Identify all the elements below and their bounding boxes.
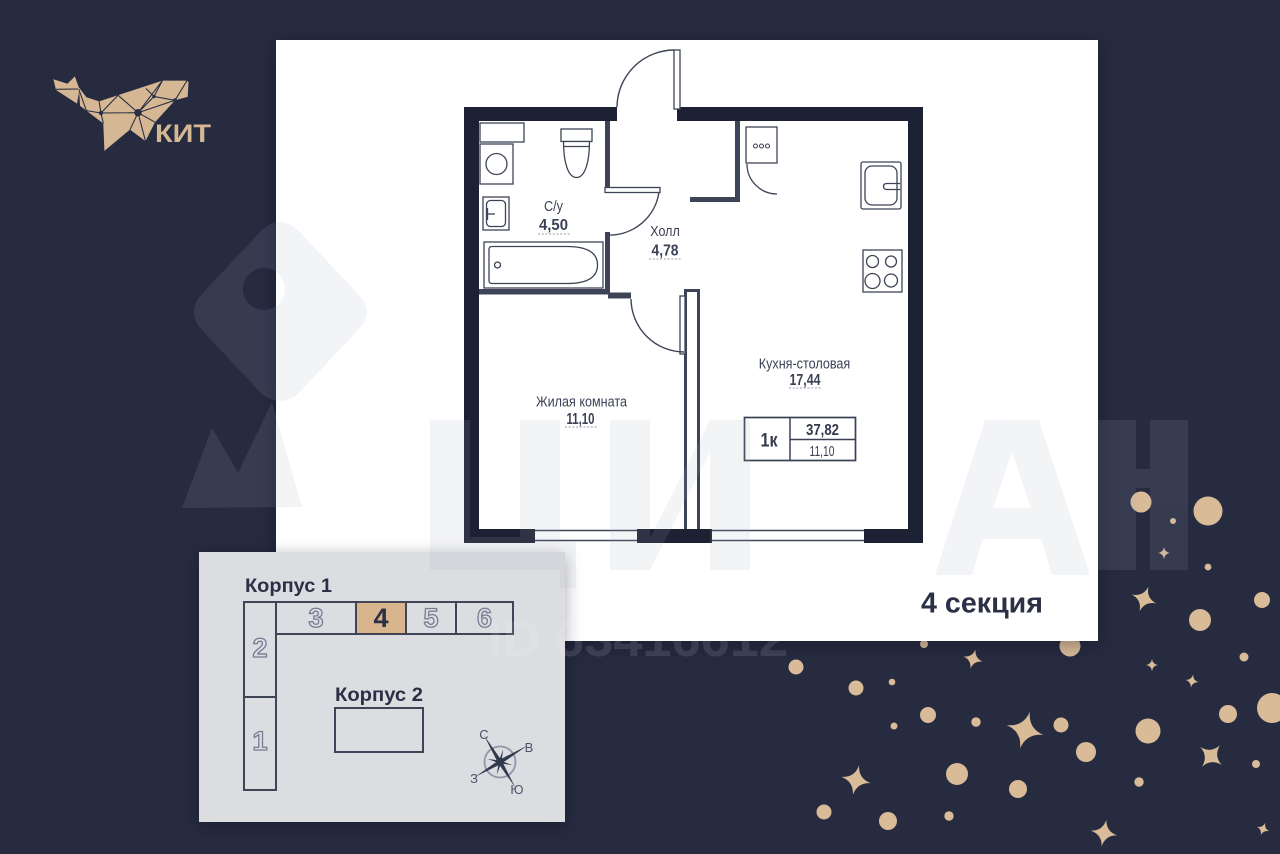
svg-text:4,78: 4,78 xyxy=(652,243,679,260)
svg-text:5: 5 xyxy=(423,603,438,633)
svg-text:4: 4 xyxy=(373,603,388,633)
svg-text:17,44: 17,44 xyxy=(790,372,821,389)
svg-text:Кухня-столовая: Кухня-столовая xyxy=(759,357,851,373)
svg-text:1к: 1к xyxy=(761,430,778,452)
svg-text:КИТ: КИТ xyxy=(155,120,211,148)
svg-text:Корпус 2: Корпус 2 xyxy=(335,685,423,706)
svg-text:6: 6 xyxy=(477,603,492,633)
svg-text:Холл: Холл xyxy=(650,224,680,240)
svg-text:С: С xyxy=(479,727,488,742)
svg-text:С/у: С/у xyxy=(544,199,564,215)
svg-text:1: 1 xyxy=(252,726,267,756)
svg-text:З: З xyxy=(470,771,478,786)
svg-text:3: 3 xyxy=(308,603,323,633)
svg-text:11,10: 11,10 xyxy=(810,443,835,460)
svg-text:2: 2 xyxy=(252,633,267,663)
svg-text:37,82: 37,82 xyxy=(806,422,839,439)
svg-text:11,10: 11,10 xyxy=(567,411,595,428)
svg-text:Жилая комната: Жилая комната xyxy=(536,395,628,411)
svg-text:4 секция: 4 секция xyxy=(921,588,1043,620)
svg-text:4,50: 4,50 xyxy=(539,217,568,234)
svg-text:В: В xyxy=(525,740,534,755)
svg-text:Корпус 1: Корпус 1 xyxy=(245,576,332,597)
svg-text:Ю: Ю xyxy=(510,782,523,797)
